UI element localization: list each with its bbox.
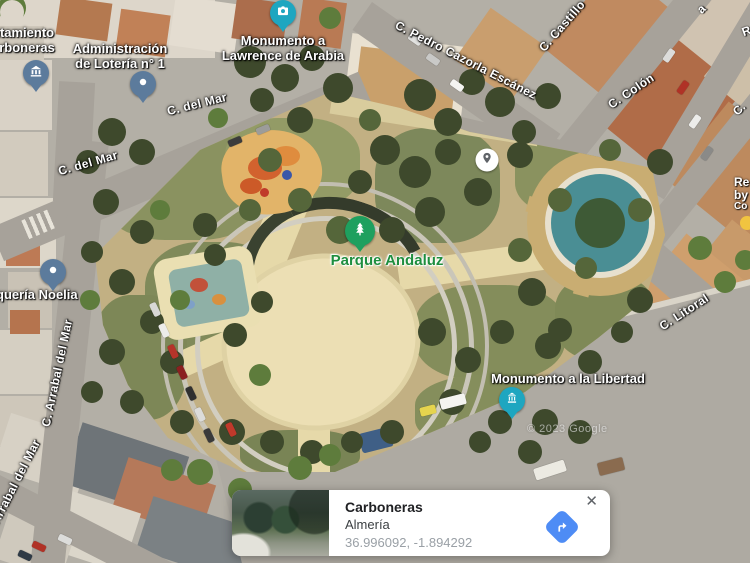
poi-label-lawrence[interactable]: Monumento a Lawrence de Arabia [222, 34, 344, 64]
poi-label-lottery[interactable]: Administración de Lotería n° 1 [73, 42, 168, 72]
play-structure [184, 300, 195, 309]
poi-marker-libertad[interactable] [499, 387, 525, 419]
building [0, 330, 52, 394]
poi-dot-yellow[interactable] [740, 216, 750, 230]
poi-marker-town-hall[interactable] [23, 60, 49, 92]
play-structure [282, 170, 292, 180]
poi-marker-parque-andaluz[interactable] [345, 216, 375, 252]
close-icon[interactable]: ✕ [585, 494, 598, 509]
poi-marker-lottery[interactable] [130, 71, 156, 103]
dot-icon [46, 263, 60, 282]
street-label: C. del Mar [166, 90, 229, 118]
tree-cluster [0, 0, 24, 24]
poi-marker-lawrence[interactable] [270, 0, 296, 32]
play-structure [240, 178, 262, 194]
poi-label-town-hall[interactable]: ntamiento arboneras [0, 26, 55, 56]
poi-label-libertad[interactable]: Monumento a la Libertad [491, 372, 645, 387]
place-pin[interactable] [476, 149, 499, 172]
poi-marker-noelia[interactable] [40, 259, 66, 291]
streetview-thumbnail[interactable] [232, 490, 329, 556]
poi-label-fragment: by [734, 188, 748, 202]
fountain-island [575, 198, 625, 248]
place-info-card: Carboneras Almería 36.996092, -1.894292 … [232, 490, 610, 556]
road [53, 81, 95, 203]
building [56, 0, 113, 41]
pin-icon [481, 151, 494, 169]
building [0, 132, 48, 196]
play-structure [260, 188, 269, 197]
tree-icon [352, 221, 368, 242]
monument-icon [505, 391, 519, 410]
map-attribution: © 2023 Google [527, 423, 608, 435]
directions-button[interactable] [544, 509, 581, 546]
place-coordinates: 36.996092, -1.894292 [345, 535, 472, 550]
museum-icon [29, 64, 43, 83]
play-structure [212, 294, 226, 305]
place-title: Carboneras [345, 499, 423, 515]
building [10, 310, 40, 334]
camera-icon [276, 4, 290, 23]
poi-label-parque-andaluz[interactable]: Parque Andaluz [331, 252, 444, 269]
dot-icon [136, 75, 150, 94]
satellite-map[interactable]: C. del Mar C. del Mar C. Pedro Cazorla E… [0, 0, 750, 563]
play-structure [272, 146, 300, 166]
place-subtitle: Almería [345, 517, 390, 532]
poi-label-fragment: Co [734, 201, 747, 212]
poi-label-fragment: Re [734, 175, 749, 189]
directions-arrow-icon [554, 519, 570, 535]
play-structure [190, 278, 208, 292]
